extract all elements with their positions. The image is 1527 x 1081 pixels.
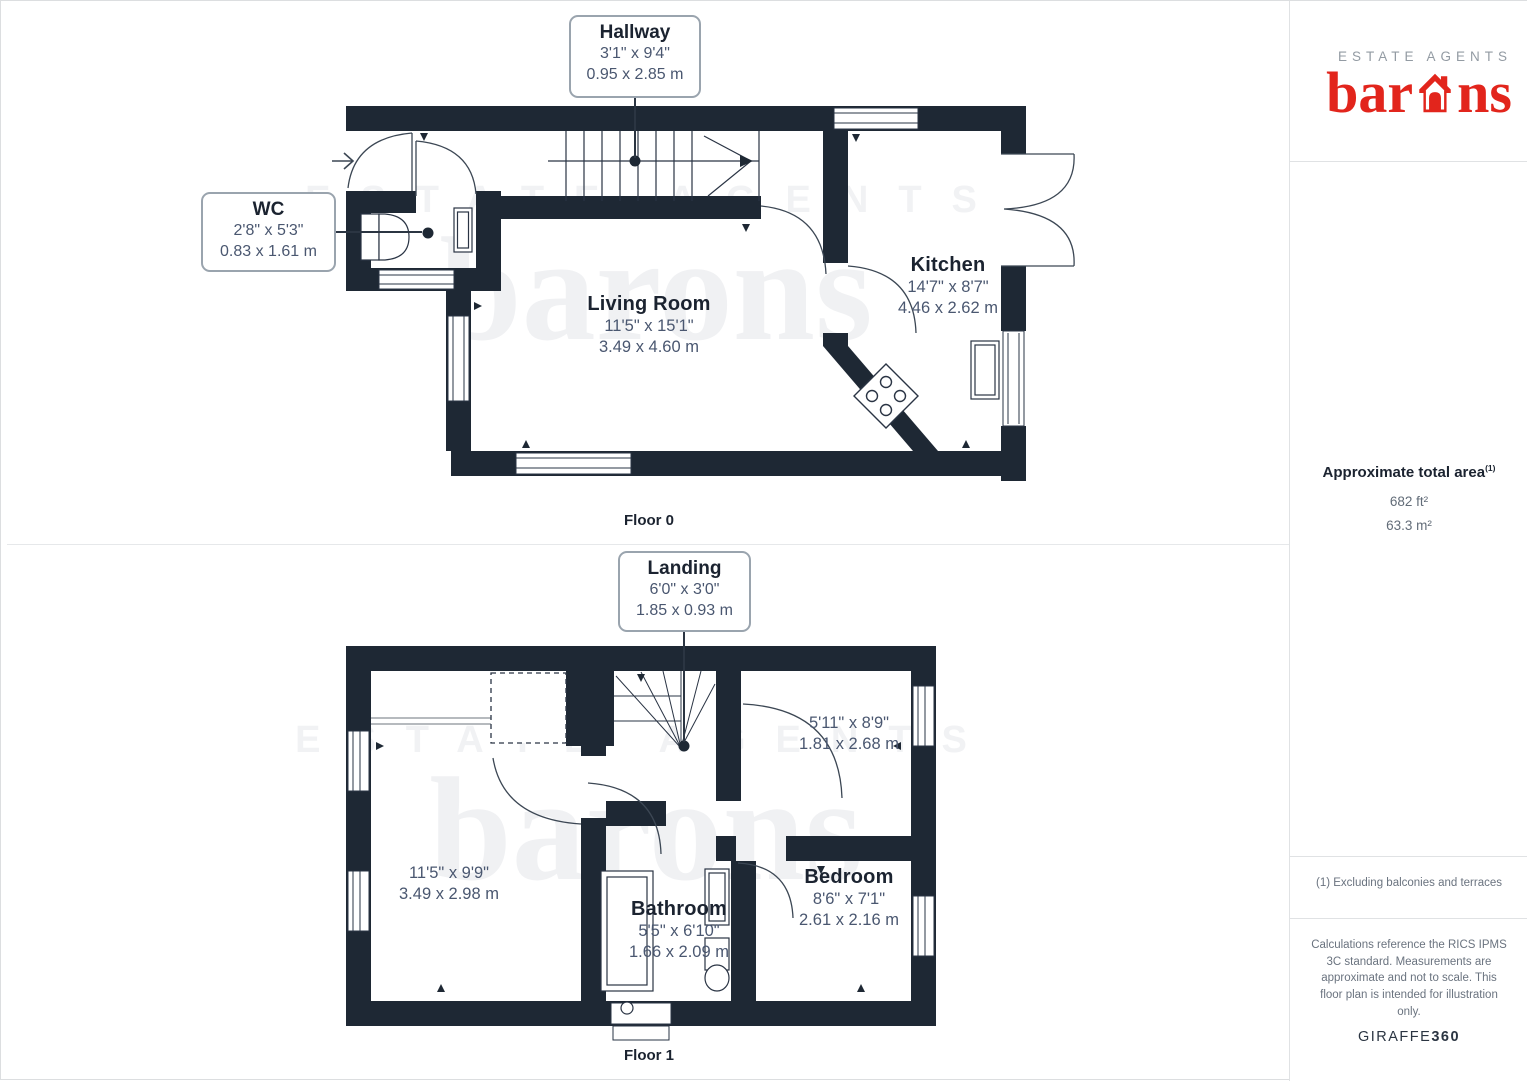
wc-dot	[423, 228, 434, 239]
total-area-block: Approximate total area(1) 682 ft² 63.3 m…	[1290, 463, 1527, 533]
sidebar-divider	[1290, 161, 1527, 162]
floor-label-1: Floor 1	[624, 1047, 674, 1064]
callout-hallway: Hallway 3'1" x 9'4" 0.95 x 2.85 m	[569, 15, 701, 98]
house-icon	[1414, 70, 1456, 116]
callout-title: Landing	[620, 558, 749, 580]
callout-title: Hallway	[571, 22, 699, 44]
callout-landing: Landing 6'0" x 3'0" 1.85 x 0.93 m	[618, 551, 751, 632]
floorplan-svg-floor1	[341, 636, 961, 1048]
brand-logo: ESTATE AGENTS bar ns	[1326, 49, 1512, 122]
callout-metric: 0.83 x 1.61 m	[203, 242, 334, 263]
plan-area: ESTATE AGENTS barons ESTATE AGENTS baron…	[1, 1, 1289, 1081]
floor-label-0: Floor 0	[624, 512, 674, 529]
stairs-icon-floor0	[548, 131, 759, 201]
room-label-floor1-room-a: 5'11" x 8'9" 1.81 x 2.68 m	[799, 713, 899, 756]
sink-icon-wc	[454, 208, 472, 252]
room-label-bathroom: Bathroom 5'5" x 6'10" 1.66 x 2.09 m	[629, 898, 729, 964]
room-label-living-room: Living Room 11'5" x 15'1" 3.49 x 4.60 m	[587, 293, 710, 359]
closet-line	[371, 718, 491, 724]
callout-stem-hallway	[634, 98, 636, 158]
entry-arrow-icon	[332, 153, 353, 169]
callout-imperial: 6'0" x 3'0"	[620, 580, 749, 601]
sidebar: ESTATE AGENTS bar ns Approximate total a…	[1289, 1, 1527, 1081]
wardrobe-icon	[491, 673, 566, 743]
floorplan-page: { "branding": {"tagline": "ESTATE AGENTS…	[0, 0, 1527, 1080]
total-area-label: Approximate total area(1)	[1290, 463, 1527, 481]
total-area-metric: 63.3 m²	[1290, 518, 1527, 533]
area-footnote: (1) Excluding balconies and terraces	[1290, 877, 1527, 889]
provider-logo: GIRAFFE360	[1290, 1029, 1527, 1045]
callout-imperial: 2'8" x 5'3"	[203, 221, 334, 242]
callout-wc: WC 2'8" x 5'3" 0.83 x 1.61 m	[201, 192, 336, 272]
callout-stem-landing	[683, 632, 685, 742]
radiator-icon	[621, 1002, 633, 1014]
sink-icon-kitchen	[971, 341, 999, 399]
callout-title: WC	[203, 199, 334, 221]
room-label-kitchen: Kitchen 14'7" x 8'7" 4.46 x 2.62 m	[898, 254, 998, 320]
stairs-icon-floor1	[614, 671, 715, 752]
room-label-bedroom: Bedroom 8'6" x 7'1" 2.61 x 2.16 m	[799, 866, 899, 932]
sidebar-divider	[1290, 856, 1527, 857]
room-label-floor1-room-b: 11'5" x 9'9" 3.49 x 2.98 m	[399, 863, 499, 906]
brand-name: bar ns	[1326, 64, 1512, 122]
total-area-imperial: 682 ft²	[1290, 494, 1527, 509]
callout-metric: 1.85 x 0.93 m	[620, 601, 749, 622]
callout-imperial: 3'1" x 9'4"	[571, 44, 699, 65]
callout-metric: 0.95 x 2.85 m	[571, 65, 699, 86]
disclaimer-text: Calculations reference the RICS IPMS 3C …	[1311, 937, 1507, 1020]
callout-stem-wc	[336, 231, 422, 233]
floors-divider	[7, 544, 1289, 545]
toilet-icon-wc	[361, 214, 409, 260]
sidebar-divider	[1290, 918, 1527, 919]
